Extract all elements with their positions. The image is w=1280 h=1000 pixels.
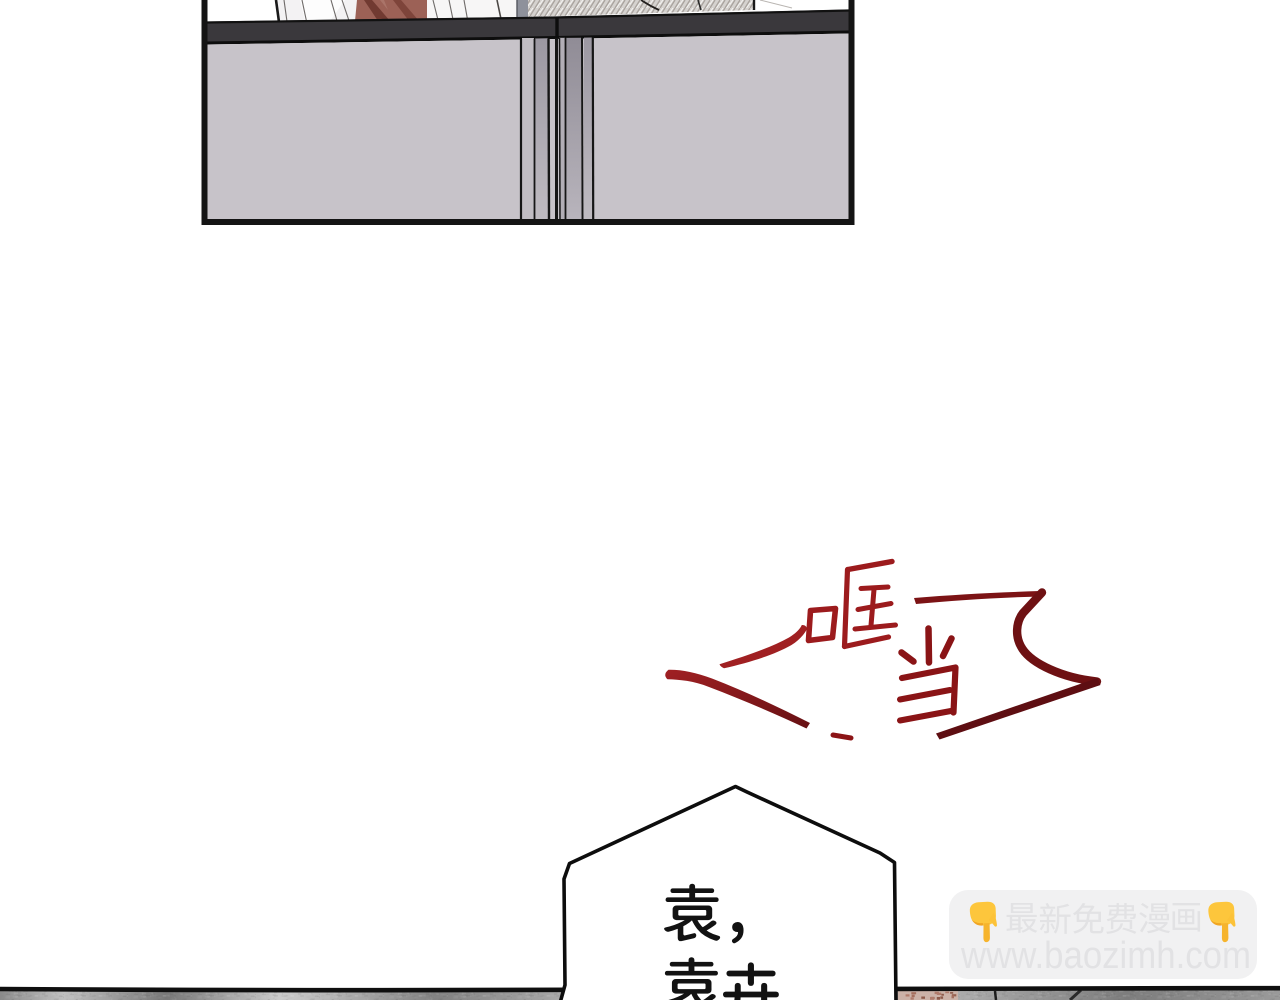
- svg-text:www.baozimh.com: www.baozimh.com: [960, 935, 1251, 977]
